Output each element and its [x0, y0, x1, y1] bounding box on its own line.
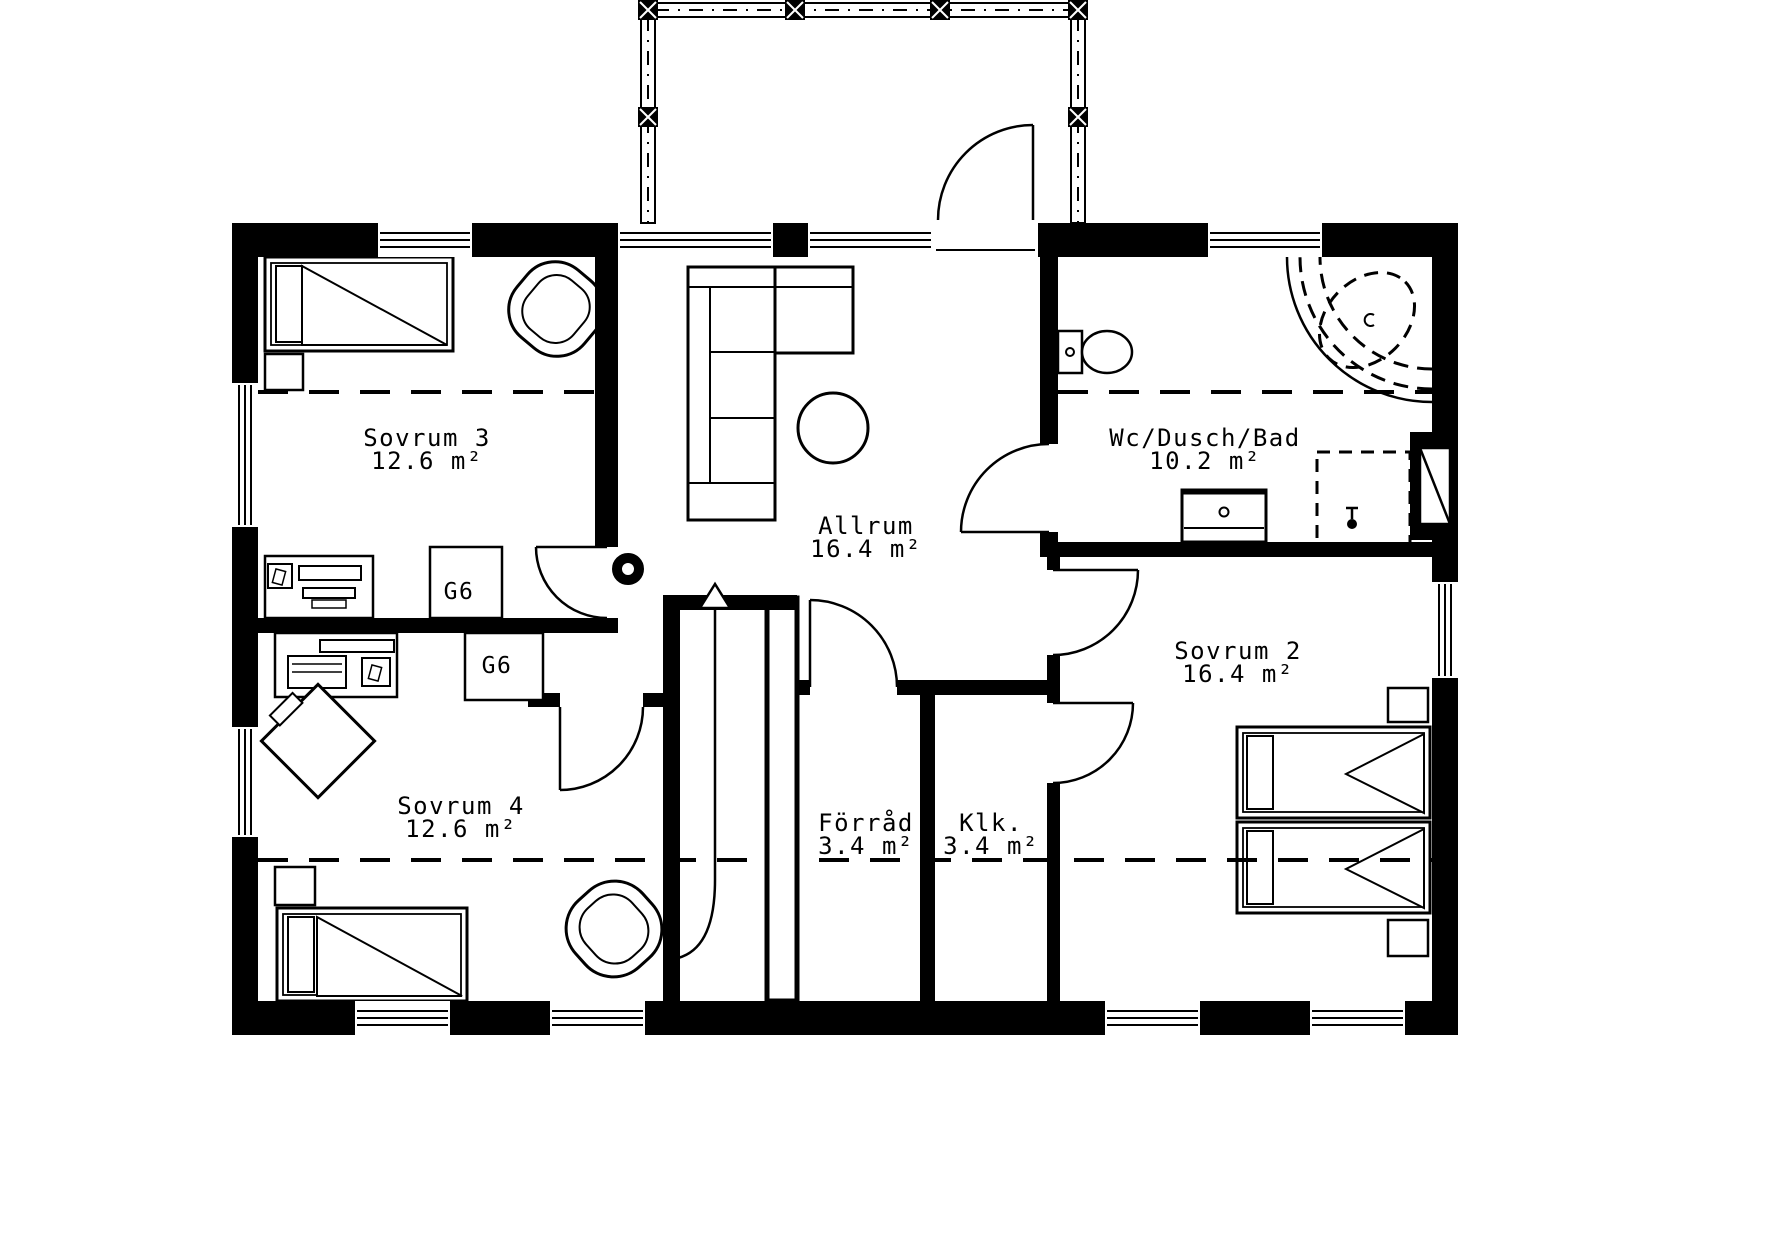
sovrum2-furniture	[1237, 688, 1430, 956]
label-badrum-area: 10.2 m²	[1149, 447, 1261, 475]
door-balcony	[938, 125, 1033, 220]
sofa-chaise	[775, 267, 853, 353]
balcony-door-opening	[933, 223, 1038, 257]
nightstand	[1388, 920, 1428, 956]
nightstand	[1388, 688, 1428, 722]
railing-post-x-marks	[640, 2, 1086, 125]
staircase	[678, 584, 730, 958]
label-wardrobe-g6-sovrum4: G6	[482, 653, 513, 679]
stair-partition-wall	[767, 598, 797, 1001]
window	[232, 727, 258, 837]
window	[808, 223, 933, 257]
door-sovrum2	[1053, 570, 1138, 655]
round-table	[798, 393, 868, 463]
nightstand	[275, 867, 315, 905]
window	[232, 383, 258, 527]
window	[1310, 1001, 1405, 1035]
label-sovrum2-area: 16.4 m²	[1182, 660, 1294, 688]
window	[1105, 1001, 1200, 1035]
door-sovrum3	[536, 547, 607, 618]
label-sovrum3-area: 12.6 m²	[371, 447, 483, 475]
armchair-round	[550, 865, 677, 992]
floor-plan-drawing: Sovrum 3 12.6 m² Sovrum 4 12.6 m² Allrum…	[0, 0, 1779, 1245]
window	[355, 1001, 450, 1035]
window	[1432, 582, 1458, 678]
shower-area	[1317, 452, 1410, 545]
pillow	[1247, 831, 1273, 904]
label-wardrobe-g6-sovrum3: G6	[444, 579, 475, 605]
nightstand	[265, 354, 303, 390]
door-sovrum4	[560, 707, 643, 790]
label-klk-area: 3.4 m²	[943, 832, 1039, 860]
vent-shaft	[1420, 448, 1450, 524]
railing-posts	[638, 0, 1088, 127]
floor-plan-page: Sovrum 3 12.6 m² Sovrum 4 12.6 m² Allrum…	[0, 0, 1779, 1245]
door-klk	[1053, 703, 1133, 783]
balcony	[638, 0, 1088, 223]
window	[1208, 223, 1322, 257]
window	[618, 223, 773, 257]
shower-head-icon	[1346, 508, 1358, 529]
pillow	[276, 266, 302, 342]
stair-walk-line	[678, 604, 715, 958]
door-forrad	[810, 600, 897, 687]
bathroom-fixtures	[1058, 254, 1433, 545]
window	[378, 223, 472, 257]
pillow	[1247, 736, 1273, 809]
door-bathroom	[961, 444, 1049, 532]
sink-drain	[1220, 508, 1229, 517]
label-sovrum4-area: 12.6 m²	[405, 815, 517, 843]
pillow	[288, 917, 314, 992]
corner-bathtub	[1287, 254, 1433, 402]
toilet-bowl	[1082, 331, 1132, 373]
label-allrum-area: 16.4 m²	[810, 535, 922, 563]
window	[550, 1001, 645, 1035]
keyboard	[299, 566, 361, 580]
label-forrad-area: 3.4 m²	[818, 832, 914, 860]
chimney-symbol	[617, 558, 639, 580]
